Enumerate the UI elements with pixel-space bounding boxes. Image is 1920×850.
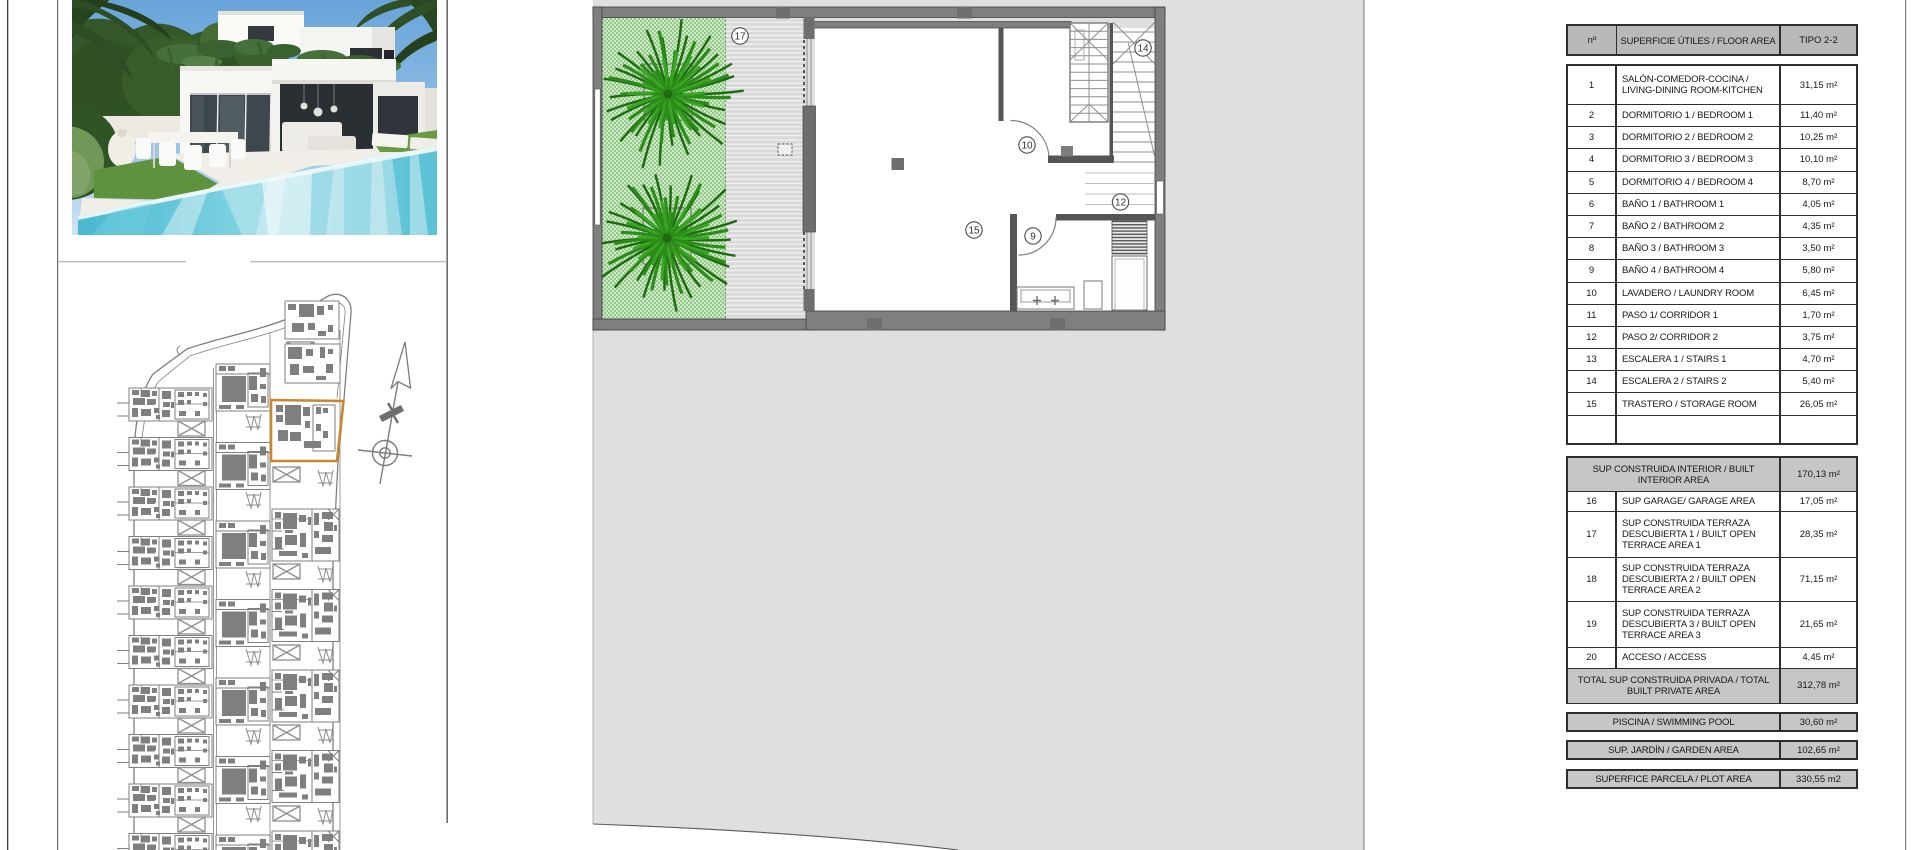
svg-text:9: 9 — [1030, 232, 1036, 243]
svg-text:15: 15 — [968, 226, 980, 237]
svg-text:12: 12 — [1115, 198, 1127, 209]
svg-text:17: 17 — [734, 32, 746, 43]
svg-text:14: 14 — [1137, 44, 1149, 55]
svg-text:10: 10 — [1021, 141, 1033, 152]
